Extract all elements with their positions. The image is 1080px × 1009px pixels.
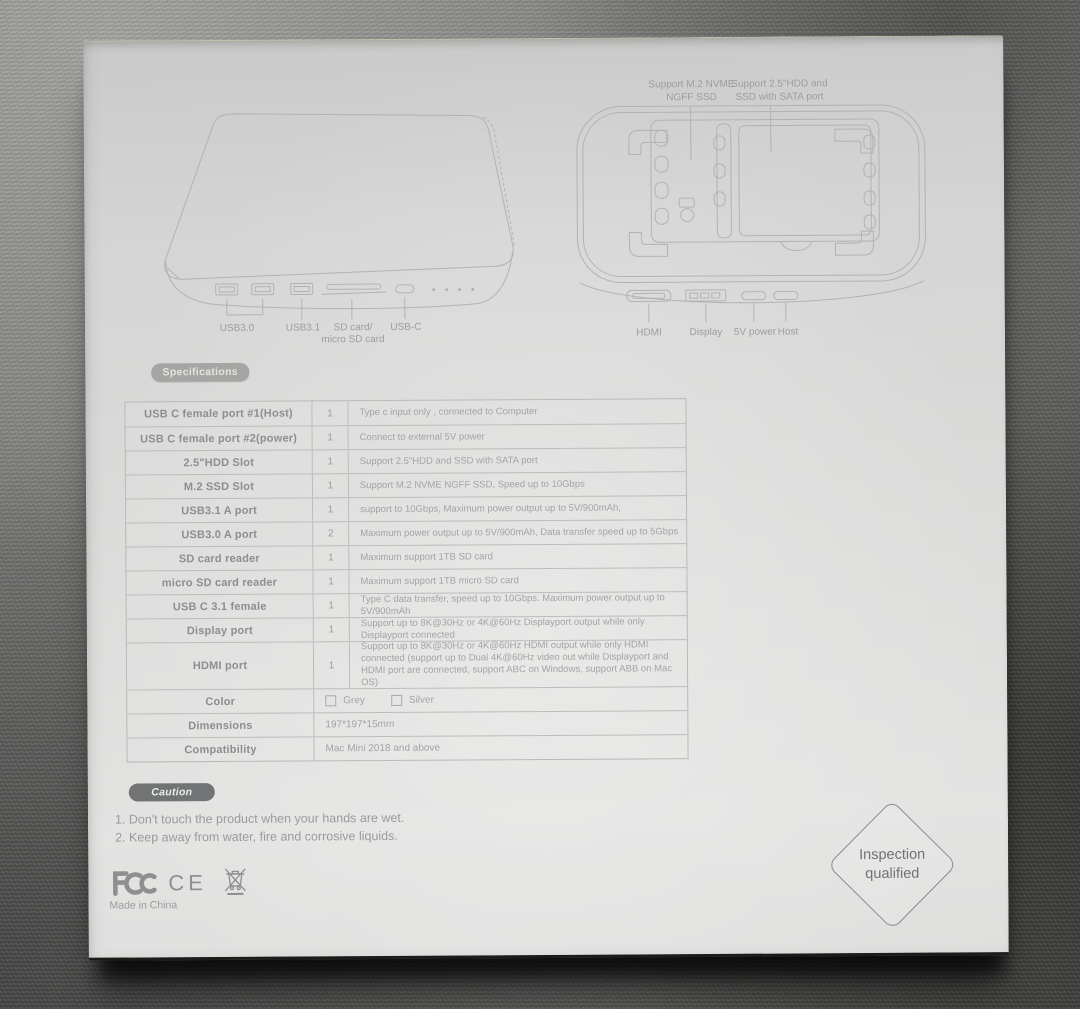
spec-desc: Support 2.5"HDD and SSD with SATA port — [348, 448, 686, 473]
color-option-label: Silver — [409, 695, 434, 706]
spec-desc: Connect to external 5V power — [348, 424, 686, 449]
table-row-compatibility: Compatibility Mac Mini 2018 and above — [127, 734, 687, 761]
caution-item: 1. Don't touch the product when your han… — [115, 810, 404, 829]
spec-qty: 1 — [312, 498, 348, 521]
table-row: M.2 SSD Slot 1 Support M.2 NVME NGFF SSD… — [126, 471, 686, 498]
spec-desc: support to 10Gbps, Maximum power output … — [348, 496, 686, 521]
port-label-usb30: USB3.0 — [220, 323, 255, 335]
inspection-qualified-stamp: Inspection qualified — [827, 800, 957, 930]
spec-qty: 1 — [312, 474, 348, 497]
spec-label: USB3.1 A port — [126, 498, 312, 522]
spec-qty: 1 — [312, 426, 348, 449]
specifications-badge: Specifications — [151, 363, 249, 382]
port-label-host: Host — [778, 326, 799, 338]
spec-label: micro SD card reader — [126, 570, 312, 594]
hub-bottom-diagram — [571, 95, 932, 327]
spec-desc: Support up to 8K@30Hz or 4K@60Hz HDMI ou… — [349, 640, 687, 688]
table-row: 2.5"HDD Slot 1 Support 2.5"HDD and SSD w… — [126, 447, 686, 474]
table-row: USB3.0 A port 2 Maximum power output up … — [126, 519, 686, 546]
spec-desc: Type C data transfer, speed up to 10Gbps… — [349, 592, 687, 617]
spec-desc: Support up to 8K@30Hz or 4K@60Hz Display… — [349, 616, 687, 641]
port-label-display: Display — [690, 327, 723, 339]
spec-desc: Maximum support 1TB micro SD card — [348, 568, 686, 593]
spec-qty: 1 — [313, 594, 349, 617]
spec-qty: 1 — [313, 642, 349, 688]
spec-value: Mac Mini 2018 and above — [313, 735, 687, 760]
caution-badge: Caution — [129, 783, 215, 802]
table-row: USB C 3.1 female 1 Type C data transfer,… — [127, 591, 687, 618]
port-label-sd-card: SD card/ micro SD card — [320, 322, 386, 346]
checkbox-silver — [391, 695, 402, 706]
table-row: Display port 1 Support up to 8K@30Hz or … — [127, 615, 687, 642]
table-row: SD card reader 1 Maximum support 1TB SD … — [126, 543, 686, 570]
spec-label: SD card reader — [126, 546, 312, 570]
table-row: USB C female port #2(power) 1 Connect to… — [126, 423, 686, 450]
spec-label: USB C 3.1 female — [127, 594, 313, 618]
caution-list: 1. Don't touch the product when your han… — [115, 810, 405, 847]
color-option-label: Grey — [343, 695, 365, 706]
stamp-text: Inspection qualified — [847, 820, 938, 911]
table-row: HDMI port 1 Support up to 8K@30Hz or 4K@… — [127, 639, 687, 689]
spec-desc: Maximum support 1TB SD card — [348, 544, 686, 569]
port-label-5v-power: 5V power — [734, 327, 776, 339]
weee-icon — [223, 865, 247, 897]
table-row: micro SD card reader 1 Maximum support 1… — [126, 567, 686, 594]
color-options: Grey Silver — [313, 687, 687, 712]
product-box-back-panel: USB3.0 USB3.1 SD card/ micro SD card USB… — [83, 35, 1009, 961]
spec-label: USB3.0 A port — [126, 522, 312, 546]
port-label-usb-c: USB-C — [390, 322, 421, 334]
spec-label: HDMI port — [127, 642, 313, 689]
spec-qty: 1 — [312, 570, 348, 593]
spec-label: 2.5"HDD Slot — [126, 450, 312, 474]
spec-label: Compatibility — [127, 737, 313, 761]
spec-desc: Support M.2 NVME NGFF SSD, Speed up to 1… — [348, 472, 686, 497]
spec-qty: 1 — [311, 401, 347, 425]
table-row-dimensions: Dimensions 197*197*15mm — [127, 710, 687, 737]
ce-mark: CE — [168, 870, 207, 896]
spec-qty: 1 — [312, 546, 348, 569]
spec-desc: Maximum power output up to 5V/900mAh, Da… — [348, 520, 686, 545]
port-label-usb31: USB3.1 — [286, 322, 321, 334]
spec-label: M.2 SSD Slot — [126, 474, 312, 498]
table-row: USB3.1 A port 1 support to 10Gbps, Maxim… — [126, 495, 686, 522]
caution-item: 2. Keep away from water, fire and corros… — [115, 827, 404, 846]
spec-label: Color — [127, 689, 313, 713]
spec-label: Display port — [127, 618, 313, 642]
table-row: USB C female port #1(Host) 1 Type c inpu… — [125, 399, 685, 426]
spec-value: 197*197*15mm — [313, 711, 687, 736]
spec-desc: Type c input only , connected to Compute… — [347, 399, 685, 425]
made-in-china-label: Made in China — [109, 899, 177, 911]
specifications-table: USB C female port #1(Host) 1 Type c inpu… — [124, 398, 688, 762]
table-row-color: Color Grey Silver — [127, 686, 687, 713]
spec-label: USB C female port #1(Host) — [125, 401, 311, 426]
spec-qty: 1 — [312, 450, 348, 473]
spec-label: USB C female port #2(power) — [126, 426, 312, 450]
spec-qty: 2 — [312, 522, 348, 545]
port-label-hdmi: HDMI — [636, 327, 662, 339]
spec-label: Dimensions — [127, 713, 313, 737]
spec-qty: 1 — [313, 618, 349, 641]
hub-front-diagram — [138, 106, 554, 329]
fcc-logo — [108, 866, 160, 898]
checkbox-grey — [325, 695, 336, 706]
